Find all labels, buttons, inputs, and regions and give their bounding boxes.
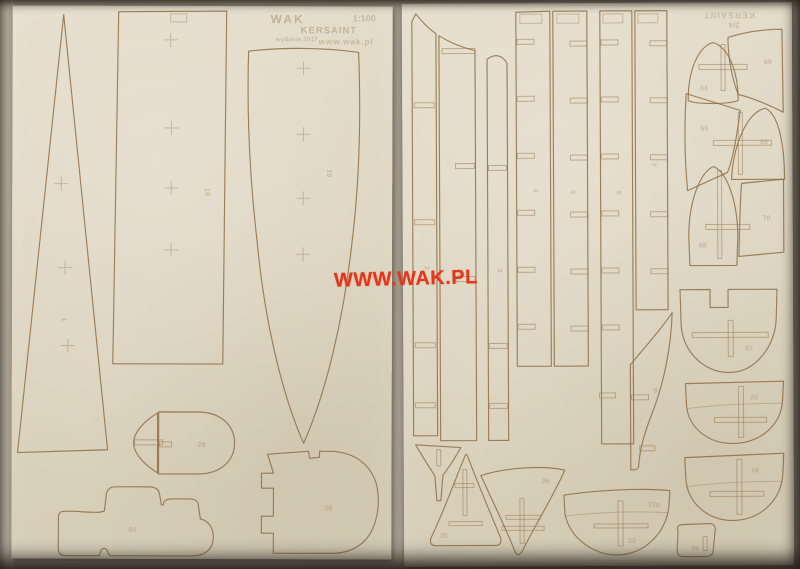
edition-text: wydanie 2017 <box>275 36 318 43</box>
part-fan-top <box>728 29 783 112</box>
part-label: 69 <box>764 59 772 66</box>
frame-a-band <box>687 403 783 408</box>
photo-of-lasercut-sheets: WAK 1:100 KERSAINT wydanie 2017 www.wak.… <box>0 0 800 569</box>
part-label: 23 <box>628 538 636 545</box>
dome-frame-band <box>692 332 768 337</box>
part-label: 25 <box>440 533 448 540</box>
part-label: 3 <box>496 268 503 272</box>
fin-crossbar <box>506 515 540 519</box>
part-label: 18 <box>203 188 210 196</box>
bell-left-crossbar <box>706 224 750 229</box>
part-label: 23a <box>648 502 660 509</box>
part-keel-plank-3 <box>487 56 509 441</box>
part-trumpet-profile <box>416 445 461 501</box>
part-label: 68 <box>699 243 707 250</box>
stringer-slot-marks <box>517 14 669 399</box>
sheet-right-corner-marking: 2/4 KERSAINT <box>703 10 755 29</box>
part-label: 39 <box>691 546 699 553</box>
scale-text: 1:100 <box>353 13 376 23</box>
hull-crossbar <box>594 524 648 528</box>
triangle-cross-marks <box>54 177 75 353</box>
frame-b-band <box>686 481 783 486</box>
corner-title-text: KERSAINT <box>703 10 754 20</box>
part-label: 18 <box>751 467 759 474</box>
part-label: 19 <box>325 169 332 177</box>
part-label: 84 <box>128 527 136 534</box>
dome-frame-slot <box>728 320 733 356</box>
part-keel-plank-2 <box>439 36 477 441</box>
brand-text: WAK <box>271 12 305 26</box>
part-stringer-2 <box>553 11 589 366</box>
part-hull-frame-a <box>685 381 783 443</box>
bell-top-slot <box>721 44 725 90</box>
part-label: 28 <box>324 505 332 512</box>
bell-left-slot <box>718 170 722 258</box>
rectangle-cross-marks <box>163 33 179 257</box>
part-label: 66 <box>760 139 768 146</box>
part-hull-frame-b <box>685 453 784 520</box>
part-label: 7 <box>649 163 656 167</box>
part-half-lens <box>134 413 158 473</box>
frame-b-slot <box>737 459 742 514</box>
part-label: 70 <box>763 215 771 222</box>
trumpet-slot <box>437 450 441 466</box>
part-stern-profile <box>630 313 673 470</box>
part-label: 20 <box>750 394 758 401</box>
part-keel-triangle <box>18 15 109 453</box>
part-label: 4 <box>532 188 539 192</box>
sheet-number-text: 2/4 <box>728 20 740 29</box>
website-text: www.wak.pl <box>318 37 374 46</box>
frame-a-slot <box>738 386 743 437</box>
part-bell-left <box>688 166 737 265</box>
part-label: 65 <box>700 126 708 133</box>
aframe-slot <box>463 470 467 516</box>
part-boot-blob <box>261 451 378 553</box>
part-stringer-3 <box>600 11 634 444</box>
part-label: 29 <box>198 442 206 449</box>
watermark-text: WWW.WAK.PL <box>334 266 478 293</box>
part-fan-right <box>739 179 784 256</box>
part-label: 8 <box>653 388 657 395</box>
part-bone-profile <box>58 487 213 556</box>
sheet-left-header: WAK 1:100 KERSAINT wydanie 2017 www.wak.… <box>271 12 376 46</box>
part-boat-hull-frame <box>564 489 670 555</box>
part-bell-top <box>688 42 738 103</box>
aframe-crossbar <box>449 522 482 526</box>
frame-a-crossbar <box>715 417 767 422</box>
plank-slot-marks <box>414 48 508 408</box>
wedge-slot <box>703 537 707 551</box>
part-fin-sail <box>481 467 565 554</box>
part-deck-plan <box>247 48 360 443</box>
part-label: 64 <box>700 86 708 93</box>
bell-top-crossbar <box>699 64 747 69</box>
aframe-crossbar <box>455 484 474 488</box>
part-label: 6 <box>615 191 622 195</box>
part-label: 5 <box>569 190 576 194</box>
deck-cross-marks <box>296 61 311 261</box>
part-label: 67 <box>745 345 753 352</box>
fin-crossbar <box>502 526 544 530</box>
kit-title-text: KERSAINT <box>301 25 358 36</box>
fin-slot <box>520 498 524 543</box>
rectangle-top-etch <box>171 14 187 22</box>
part-label: 26 <box>542 478 550 485</box>
hull-band <box>565 512 669 516</box>
part-label: 1 <box>60 318 67 322</box>
